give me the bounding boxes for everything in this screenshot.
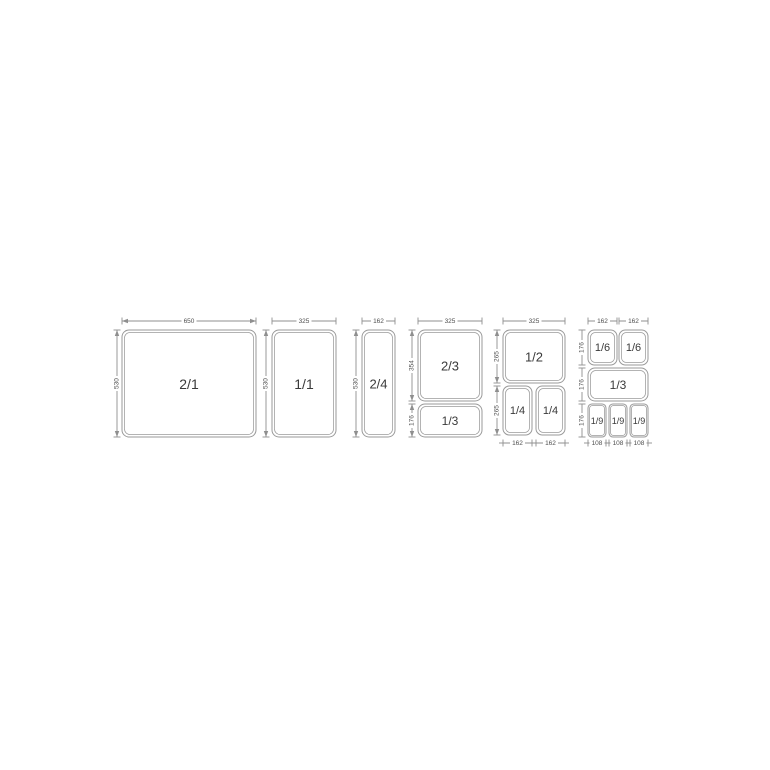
dimension-325: 325: [418, 317, 482, 325]
pan-1-9: 1/9: [609, 404, 627, 437]
dimension-162: 162: [619, 317, 648, 325]
dimension-325: 325: [503, 317, 565, 325]
dimension-325: 325: [272, 317, 336, 325]
pan-size-label: 1/2: [525, 350, 543, 365]
dimension-label: 265: [494, 405, 501, 416]
pan-size-label: 1/4: [510, 405, 525, 417]
dimension-label: 354: [409, 360, 416, 371]
pan-size-label: 1/9: [612, 416, 625, 426]
pan-1-4: 1/4: [503, 386, 532, 435]
pan-size-label: 1/3: [610, 378, 627, 392]
dimension-label: 176: [579, 415, 586, 426]
pan-size-label: 1/9: [633, 416, 646, 426]
dimension-label: 325: [529, 318, 540, 325]
pan-size-label: 1/6: [595, 342, 610, 354]
dimension-label: 176: [409, 415, 416, 426]
pan-1-1: 1/1: [272, 330, 336, 437]
pan-size-label: 2/4: [369, 377, 387, 392]
pan-size-label: 2/1: [179, 376, 199, 392]
pan-2-3: 2/3: [418, 330, 482, 401]
dimension-530: 530: [352, 330, 360, 437]
dimension-162: 162: [362, 317, 395, 325]
dimension-162: 162: [532, 439, 569, 447]
pan-size-label: 1/9: [591, 416, 604, 426]
dimension-354: 354: [408, 330, 416, 401]
dimension-label: 325: [299, 318, 310, 325]
dimension-176: 176: [578, 404, 586, 437]
pan-size-label: 1/6: [626, 342, 641, 354]
pan-2-4: 2/4: [362, 330, 395, 437]
pan-1-6: 1/6: [619, 330, 648, 365]
pan-1-2: 1/2: [503, 330, 565, 383]
dimension-label: 162: [597, 318, 608, 325]
dimension-label: 530: [353, 378, 360, 389]
dimension-176: 176: [578, 368, 586, 401]
dimension-108: 108: [626, 439, 652, 447]
dimension-162: 162: [588, 317, 617, 325]
dimension-265: 265: [493, 330, 501, 383]
pan-size-label: 1/4: [543, 405, 558, 417]
dimension-label: 650: [184, 318, 195, 325]
dimension-label: 176: [579, 342, 586, 353]
dimension-650: 650: [122, 317, 256, 325]
pan-2-1: 2/1: [122, 330, 256, 437]
dimension-label: 162: [512, 440, 523, 447]
dimension-530: 530: [262, 330, 270, 437]
dimension-label: 162: [373, 318, 384, 325]
dimension-176: 176: [408, 404, 416, 437]
pan-size-label: 1/3: [442, 414, 459, 428]
gastronorm-diagram-canvas: 2/11/12/42/31/31/21/41/41/61/61/31/91/91…: [0, 0, 770, 770]
dimension-label: 108: [592, 440, 603, 447]
pan-size-label: 1/1: [294, 376, 314, 392]
pan-1-9: 1/9: [588, 404, 606, 437]
pan-1-3: 1/3: [588, 368, 648, 401]
pan-1-9: 1/9: [630, 404, 648, 437]
dimension-530: 530: [113, 330, 121, 437]
dimension-label: 265: [494, 351, 501, 362]
pan-size-label: 2/3: [441, 359, 459, 374]
dimension-label: 108: [613, 440, 624, 447]
dimension-162: 162: [499, 439, 536, 447]
dimension-label: 530: [114, 378, 121, 389]
dimension-label: 162: [545, 440, 556, 447]
dimension-265: 265: [493, 386, 501, 435]
dimension-label: 108: [634, 440, 645, 447]
page: 2/11/12/42/31/31/21/41/41/61/61/31/91/91…: [0, 0, 770, 770]
dimension-label: 176: [579, 379, 586, 390]
pan-1-4: 1/4: [536, 386, 565, 435]
pan-1-6: 1/6: [588, 330, 617, 365]
dimension-label: 325: [445, 318, 456, 325]
dimension-label: 530: [263, 378, 270, 389]
dimension-176: 176: [578, 330, 586, 365]
dimension-label: 162: [628, 318, 639, 325]
pan-1-3: 1/3: [418, 404, 482, 437]
